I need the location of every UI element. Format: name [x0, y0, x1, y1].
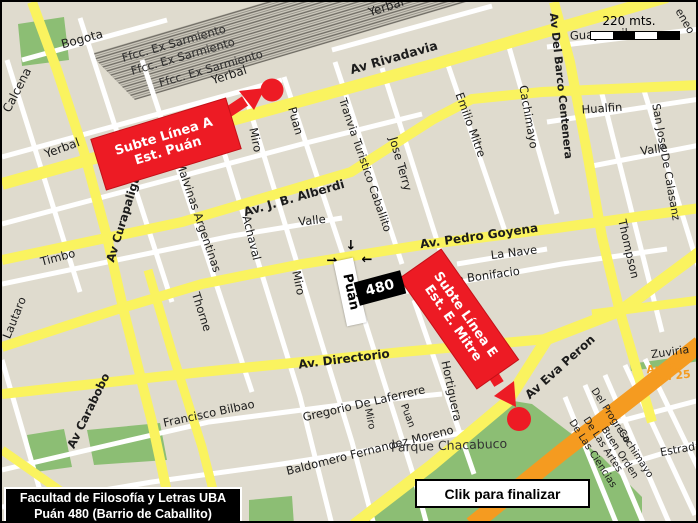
- map-canvas[interactable]: BogotaCalcenaYerbalYerbalYerbalFfcc. Ex …: [0, 0, 698, 523]
- direction-arrow-icon: ←: [362, 254, 373, 267]
- street-label: Hualfin: [581, 102, 622, 116]
- street-label: Valle: [298, 214, 327, 228]
- title-line1: Facultad de Filosofía y Letras UBA: [6, 490, 240, 506]
- scale-label: 220 mts.: [568, 14, 690, 28]
- street-label: Au 25: [655, 369, 691, 384]
- finish-button[interactable]: Clik para finalizar: [415, 479, 590, 508]
- subte-e-station-dot[interactable]: [507, 407, 531, 431]
- title-box: Facultad de Filosofía y Letras UBA Puán …: [4, 487, 242, 523]
- direction-arrow-icon: ↓: [346, 240, 357, 253]
- title-line2: Puán 480 (Barrio de Caballito): [6, 506, 240, 522]
- subte-a-station-dot[interactable]: [261, 79, 284, 102]
- scale-segments: [590, 31, 680, 40]
- scale-bar: 220 mts.: [568, 14, 690, 40]
